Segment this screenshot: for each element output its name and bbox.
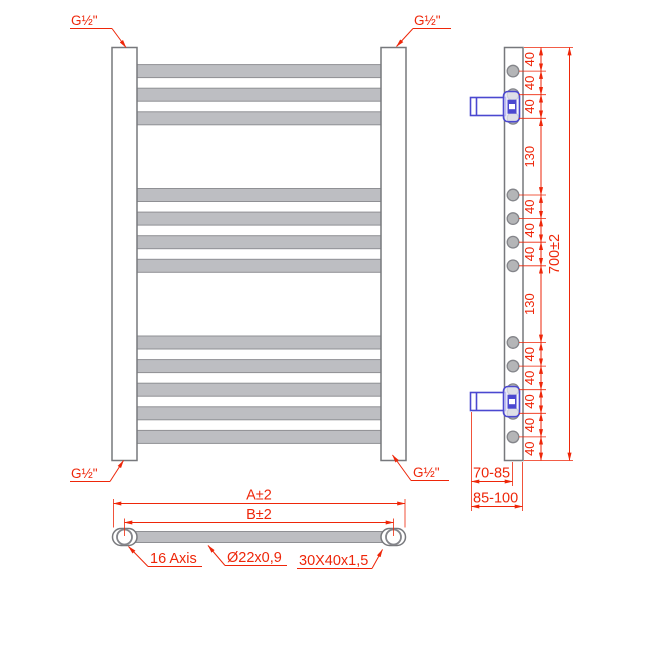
dim-wall-center: 70-85: [473, 466, 510, 482]
clamp-lock-slot: [509, 399, 515, 404]
tube-spec-label: Ø22x0,9: [227, 550, 282, 566]
bottom-tube: [132, 532, 386, 543]
radiator-bar: [136, 336, 382, 349]
callout-leader: [129, 547, 149, 567]
dim-width-outer: A±2: [246, 488, 272, 504]
dim-40: 40: [522, 347, 537, 361]
tube-section: [507, 260, 519, 272]
clamp-lock-slot: [509, 104, 515, 109]
callout-leader: [372, 550, 383, 569]
connection-label-top-left: G½": [71, 13, 98, 28]
radiator-bar: [136, 383, 382, 396]
radiator-bar: [136, 212, 382, 225]
connection-label-top-right: G½": [414, 13, 441, 28]
radiator-bar: [136, 88, 382, 101]
dim-40: 40: [522, 52, 537, 66]
dim-40: 40: [522, 394, 537, 408]
radiator-bar: [136, 407, 382, 420]
connection-label-bottom-left: G½": [71, 466, 98, 481]
side-view: [471, 48, 524, 461]
left-vertical-tube: [112, 48, 137, 461]
tube-section: [507, 189, 519, 201]
radiator-bar: [136, 430, 382, 443]
callout-leader: [112, 29, 126, 48]
dim-40: 40: [522, 418, 537, 432]
bottom-dimensions: A±2 B±2 16 Axis Ø22x0,9 30X40x1,5: [114, 488, 406, 570]
radiator-bar: [136, 189, 382, 202]
tube-section: [507, 236, 519, 248]
callout-leader: [397, 29, 414, 47]
dim-width-inner: B±2: [246, 507, 272, 523]
radiator-bar: [136, 65, 382, 78]
callout-leader: [110, 461, 124, 482]
upper-bracket-clamp: [504, 92, 520, 122]
right-vertical-tube: [381, 48, 406, 461]
lower-wall-bracket: [471, 387, 520, 417]
tube-section: [507, 65, 519, 77]
radiator-bar: [136, 112, 382, 125]
dim-40: 40: [522, 76, 537, 90]
dim-40: 40: [522, 200, 537, 214]
dim-40: 40: [522, 441, 537, 455]
profile-spec-label: 30X40x1,5: [299, 553, 368, 569]
dim-130: 130: [522, 293, 537, 315]
radiator-bar: [136, 360, 382, 373]
tube-section: [507, 360, 519, 372]
dim-130: 130: [522, 146, 537, 168]
tube-section: [507, 337, 519, 349]
bottom-view: [113, 529, 406, 546]
front-view: [112, 48, 406, 461]
callout-leader: [208, 546, 225, 566]
dim-total-height: 700±2: [547, 234, 563, 274]
radiator-bar: [136, 259, 382, 272]
dim-40: 40: [522, 371, 537, 385]
tube-section: [507, 213, 519, 225]
tube-section: [507, 431, 519, 443]
dim-40: 40: [522, 223, 537, 237]
axis-label: 16 Axis: [150, 551, 197, 567]
technical-drawing-canvas: G½" G½" G½" G½": [0, 0, 650, 650]
upper-wall-bracket: [471, 98, 506, 116]
dim-40: 40: [522, 99, 537, 113]
dim-40: 40: [522, 247, 537, 261]
connection-label-bottom-right: G½": [413, 465, 440, 480]
radiator-bar: [136, 236, 382, 249]
radiator-drawing: G½" G½" G½" G½": [0, 0, 650, 650]
dim-wall-face: 85-100: [473, 491, 518, 507]
